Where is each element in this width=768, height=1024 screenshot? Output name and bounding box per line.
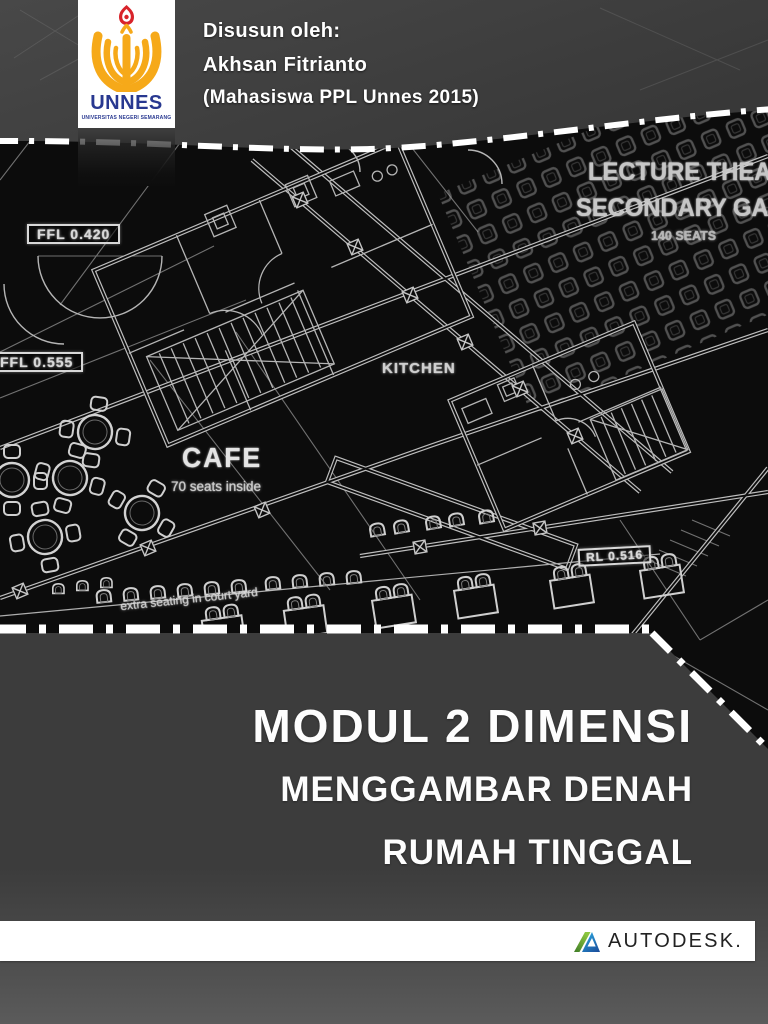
title-panel-background xyxy=(0,633,768,1024)
document-cover-page: FFL 0.420 FFL 0.555 RL 0.516 KITCHEN CAF… xyxy=(0,0,768,1024)
module-title: MODUL 2 DIMENSI xyxy=(252,699,693,753)
module-subtitle-2: RUMAH TINGGAL xyxy=(383,833,693,873)
footer-strip: AUTODESK. xyxy=(0,921,755,961)
module-subtitle: MENGGAMBAR DENAH xyxy=(280,770,693,810)
autodesk-logo-icon xyxy=(574,930,600,953)
autodesk-logo: AUTODESK. xyxy=(574,929,743,953)
autodesk-wordmark: AUTODESK. xyxy=(608,930,743,953)
